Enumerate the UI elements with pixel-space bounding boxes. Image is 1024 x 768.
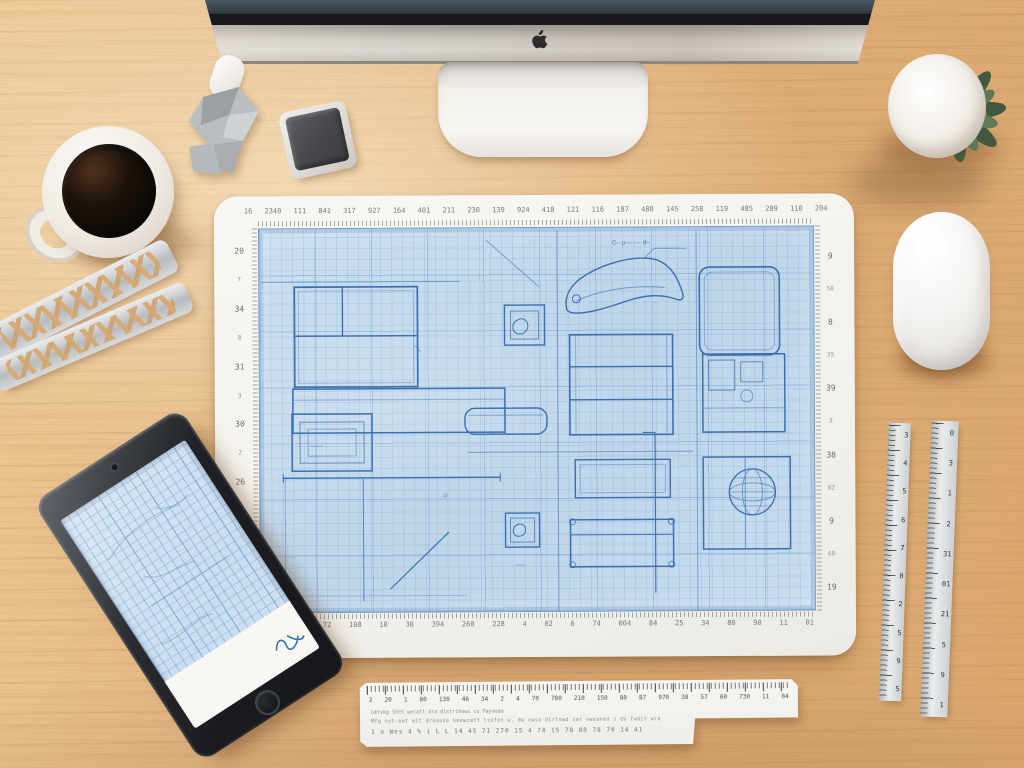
ruler-number: 1 [947,490,952,498]
ruler-number: 70 [532,695,539,702]
ruler-number: 01 [942,580,951,588]
ruler-number: 6 [901,516,905,524]
ruler-number: 0 [950,429,955,437]
ruler-number: 9 [896,657,900,665]
ruler-number: 11 [762,693,769,700]
steel-ruler-right: 0312310121591 [920,421,958,718]
ruler-number: 7 [900,544,904,552]
imac-screen [205,0,875,14]
ruler-number: 4 [903,459,907,467]
blueprint-drawing: C-- p--- ---- d-- [214,193,856,658]
ruler-number: 210 [574,695,585,702]
ruler-number: 2 [369,697,373,704]
ruler-number: 130 [439,696,450,703]
steel-ruler-left: 3456702595 [879,423,911,702]
ruler-number: 21 [941,610,950,618]
ruler-numbers: 3456702595 [895,431,908,693]
ruler-number: 5 [895,685,899,693]
ruler-number: 150 [597,695,608,702]
ruler-number: 87 [639,694,646,701]
ruler-number: 2 [946,520,951,528]
ruler-number: 3 [904,431,908,439]
ruler-number: 80 [620,695,627,702]
ruler-number: 970 [658,694,669,701]
ruler-number: 80 [420,696,427,703]
ruler-number: 5 [942,641,947,649]
tablet-home-button [252,688,281,717]
ruler-number: 04 [781,693,788,700]
ruler-number: 38 [681,694,688,701]
ink-pad [278,100,359,181]
ruler-number: 20 [385,697,392,704]
ink-pad-surface [285,107,350,171]
gray-stone [183,85,261,180]
ruler-text-line: 1 o Wes 4 % i L L 14 45 71 270 15 4 74 1… [371,726,668,736]
ruler-text-line: Mfg nyt-ewt wit droause keewcatt tssfat … [371,716,678,725]
coffee-mug [42,126,174,258]
ruler-number: 1 [404,696,408,703]
blueprint-annotation: C-- p--- ---- d-- [612,240,650,246]
ruler-number: 57 [700,694,707,701]
signature-squiggle [262,616,311,664]
magic-mouse [893,212,990,370]
ruler-numbers: 0312310121591 [937,429,956,709]
ruler-number: 730 [739,694,750,701]
ruler-number: 31 [943,550,952,558]
ruler-number: 5 [897,629,901,637]
imac-bezel [205,14,875,25]
ruler-number: 9 [940,671,945,679]
coffee-surface [62,144,156,238]
ruler-number: 4 [516,696,520,703]
ruler-number: 46 [462,696,469,703]
ruler-number: 3 [949,459,954,467]
scale-ruler-body: 2201801304634247078021015080879703857607… [360,679,799,747]
ruler-number-row: 2201801304634247078021015080879703857607… [369,693,789,704]
succulent-plant [886,46,1018,178]
desk-scene: 1623401118413179271644012112301399244181… [0,0,1024,768]
ruler-number: 2 [898,600,902,608]
imac-display [205,0,875,64]
ruler-number: 0 [899,572,903,580]
ruler-number: 2 [500,696,504,703]
tablet-screen-white-strip [165,601,320,729]
scale-ruler-bottom: 2201801304634247078021015080879703857607… [360,679,799,747]
ruler-number: 5 [902,488,906,496]
ruler-number: 1 [939,701,944,709]
imac-stand-foot [438,62,648,157]
ruler-number: 780 [551,695,562,702]
ruler-number: 34 [481,696,488,703]
blueprint-sheet: 1623401118413179271644012112301399244181… [214,193,856,658]
ruler-number: 60 [720,694,727,701]
apple-logo-icon [530,29,550,53]
plant-pot [888,54,986,158]
tablet-camera-icon [110,463,118,471]
ruler-text-line: Lmtvkg Stet wecalt dra distrihews cu Fay… [371,708,618,716]
